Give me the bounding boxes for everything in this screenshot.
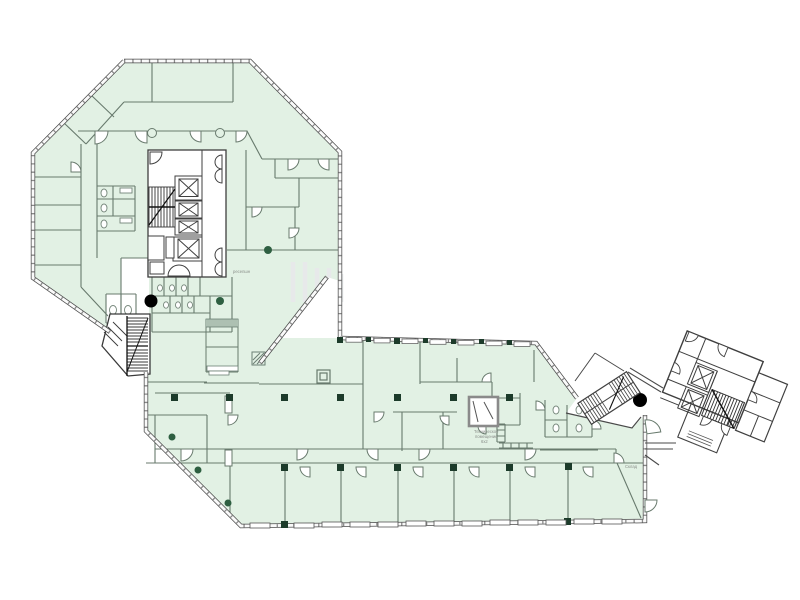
svg-text:6х2: 6х2 bbox=[481, 439, 488, 444]
svg-text:ресепшн: ресепшн bbox=[233, 269, 251, 274]
svg-text:Склад: Склад bbox=[625, 464, 638, 469]
